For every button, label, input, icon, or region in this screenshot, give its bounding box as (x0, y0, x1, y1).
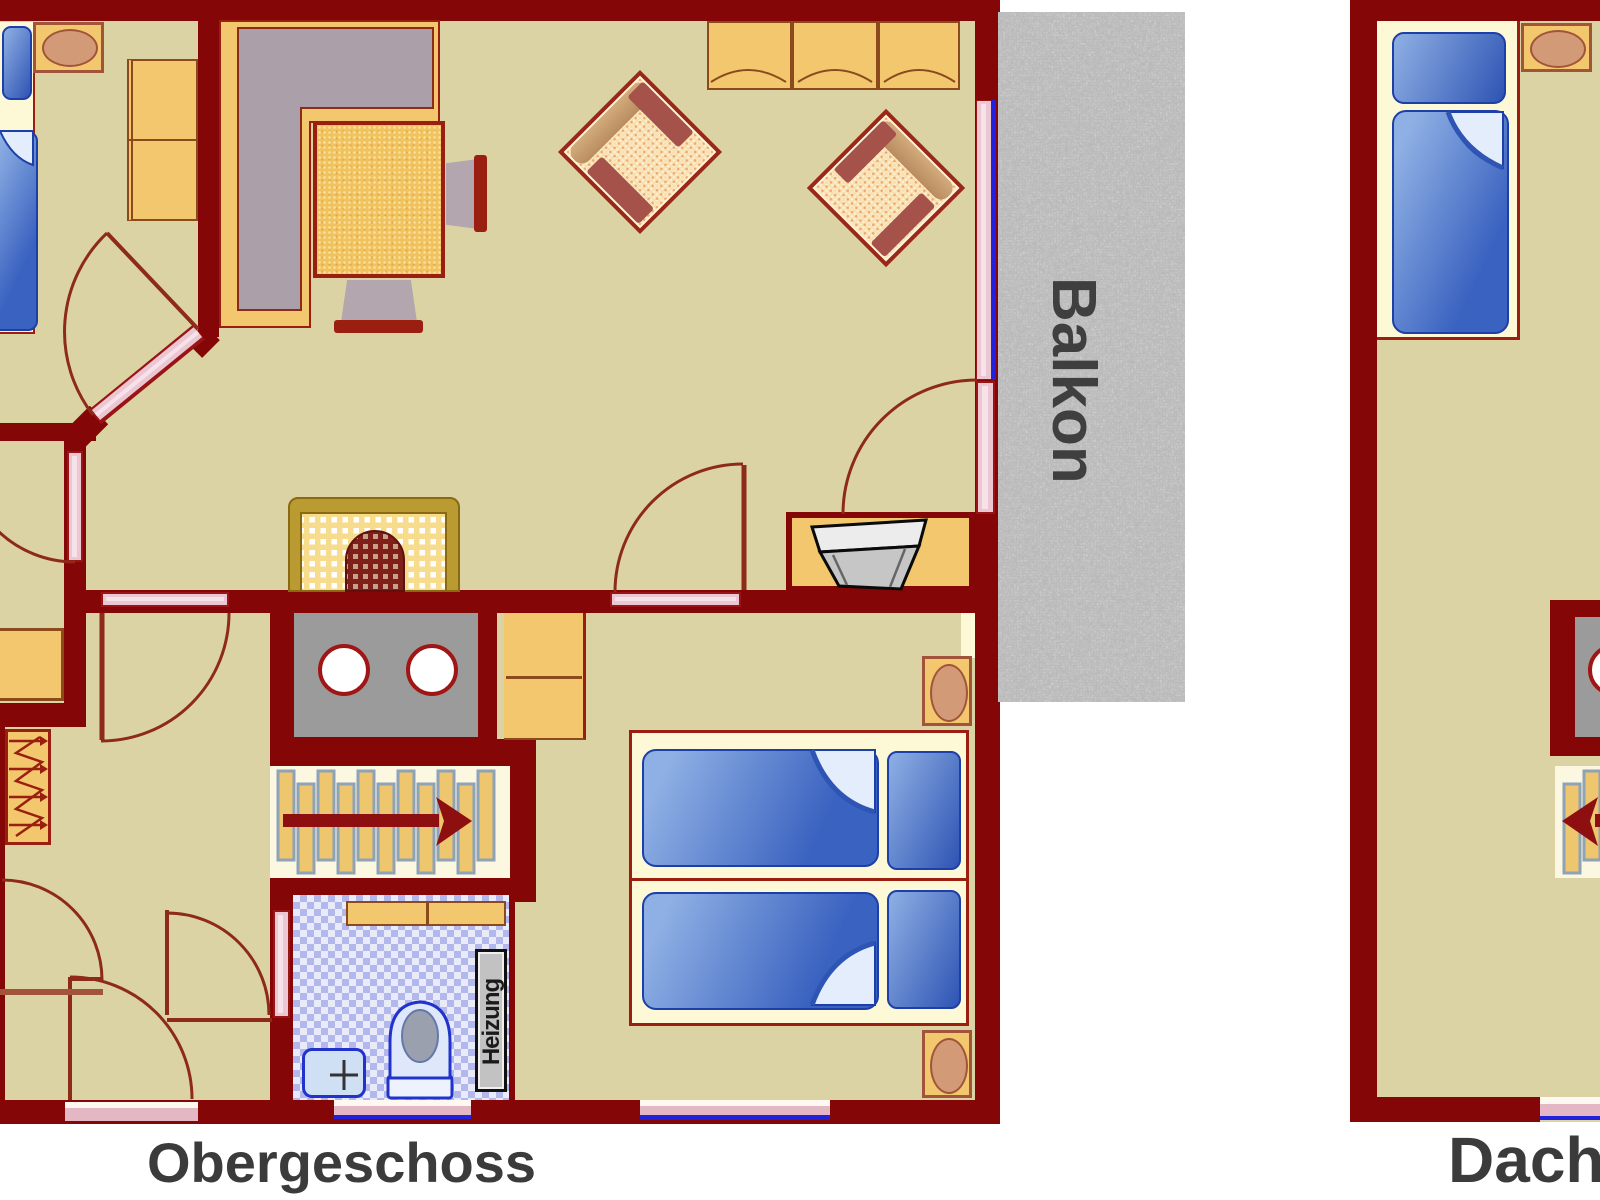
svg-text:Balkon: Balkon (1039, 277, 1108, 484)
